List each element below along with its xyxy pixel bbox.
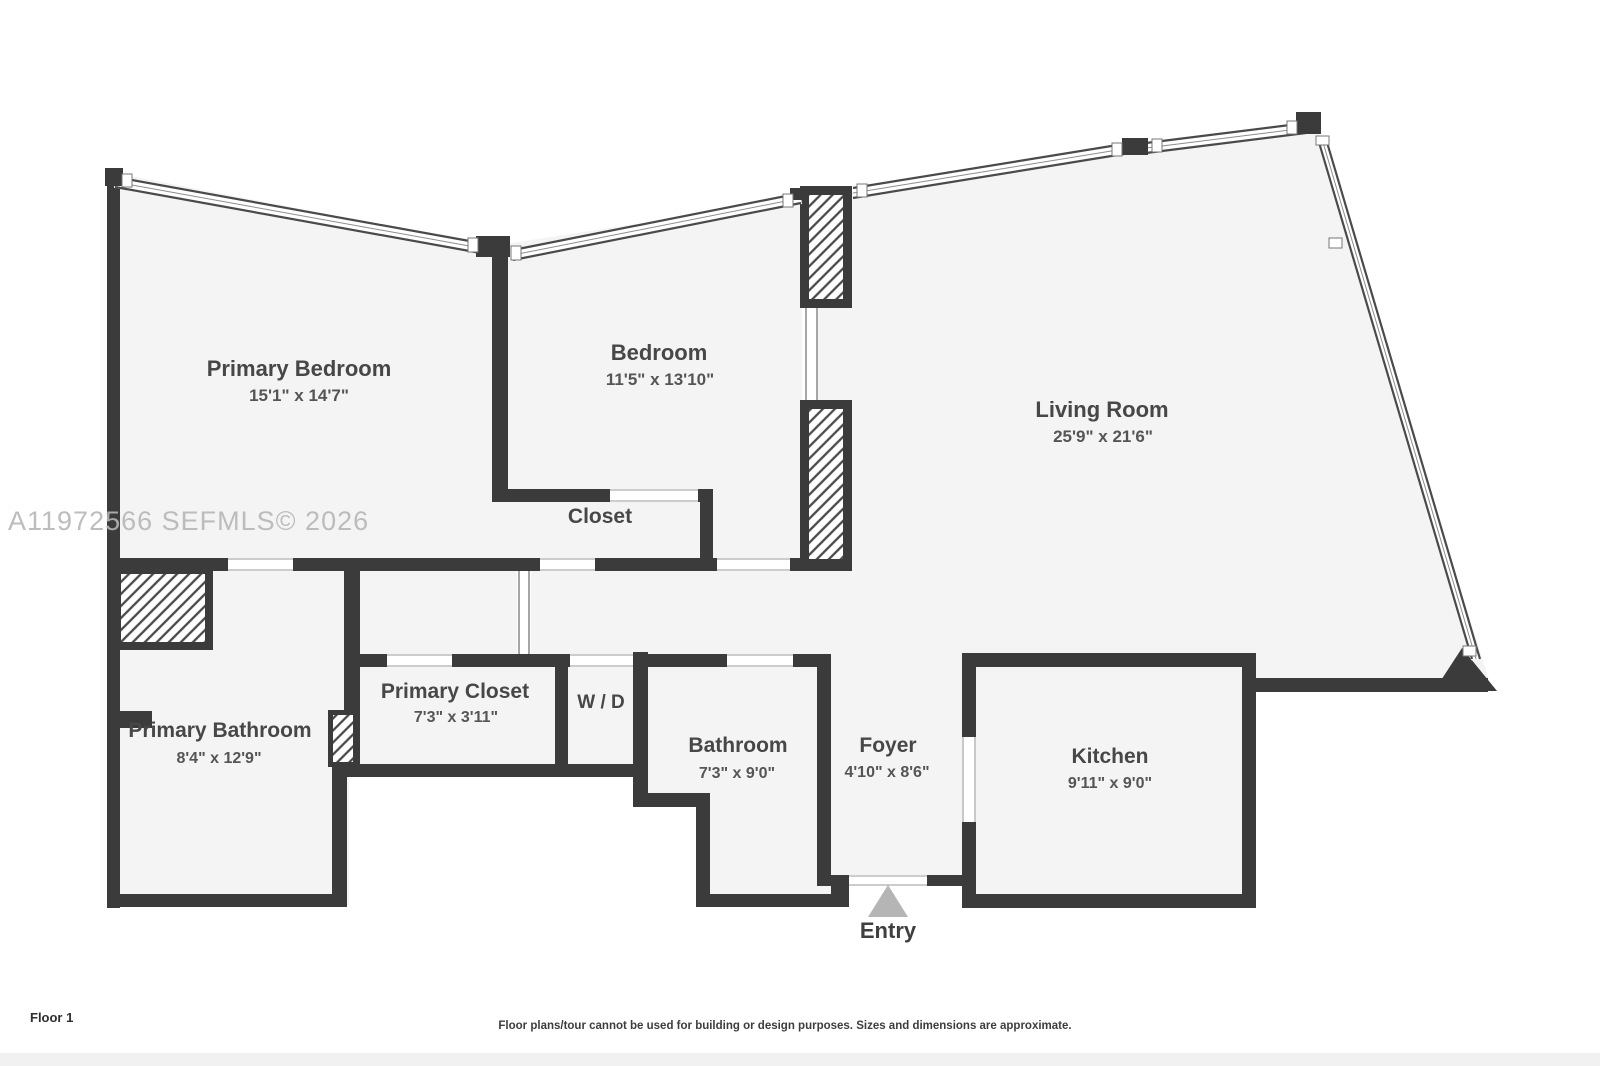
bottom-strip [0,1053,1600,1066]
floor-plan-page: Primary Bedroom 15'1" x 14'7" Bedroom 11… [0,0,1600,1066]
corner-block [105,168,123,186]
room-dims-bathroom: 7'3" x 9'0" [699,765,775,782]
room-dims-kitchen: 9'11" x 9'0" [1068,775,1152,792]
room-dims-primary-bathroom: 8'4" x 12'9" [176,750,261,767]
room-dims-primary-closet: 7'3" x 3'11" [414,709,498,726]
room-label-washer-dryer: W / D [577,692,625,713]
hatch-block [333,715,353,762]
door-bedroom-closet [610,489,698,502]
door-washer-dryer [570,654,633,667]
disclaimer-text: Floor plans/tour cannot be used for buil… [498,1020,1071,1032]
room-label-bathroom: Bathroom [688,734,787,757]
room-label-primary-closet: Primary Closet [381,680,529,703]
floor-plan-svg: Primary Bedroom 15'1" x 14'7" Bedroom 11… [0,0,1600,1066]
door-entry-opening [849,875,927,886]
room-label-primary-bathroom: Primary Bathroom [128,719,311,742]
room-label-kitchen: Kitchen [1071,745,1148,768]
room-dims-bedroom: 11'5" x 13'10" [606,370,714,389]
room-label-primary-bedroom: Primary Bedroom [207,356,392,381]
mullion-block [1122,138,1148,155]
room-dims-primary-bedroom: 15'1" x 14'7" [249,386,349,405]
hatch-block [121,574,205,642]
entry-label: Entry [860,918,917,943]
apex-block [476,236,510,257]
room-label-closet: Closet [568,505,632,528]
mls-watermark: A11972566 SEFMLS© 2026 [8,506,369,536]
room-label-foyer: Foyer [859,734,916,757]
door-bathroom [727,654,793,667]
room-label-bedroom: Bedroom [611,340,708,365]
door-bedroom [717,558,790,571]
room-dims-foyer: 4'10" x 8'6" [844,764,929,781]
door-primary-bathroom-upper [228,558,293,571]
hatch-block [809,409,843,559]
room-dims-living-room: 25'9" x 21'6" [1053,427,1153,446]
hatch-block [809,195,843,299]
door-primary-closet [387,654,452,667]
corner-block [1296,112,1321,134]
floor-number-label: Floor 1 [30,1010,73,1025]
door-kitchen-opening [962,737,976,822]
room-label-living-room: Living Room [1035,397,1168,422]
door-closet-hall [540,558,595,571]
